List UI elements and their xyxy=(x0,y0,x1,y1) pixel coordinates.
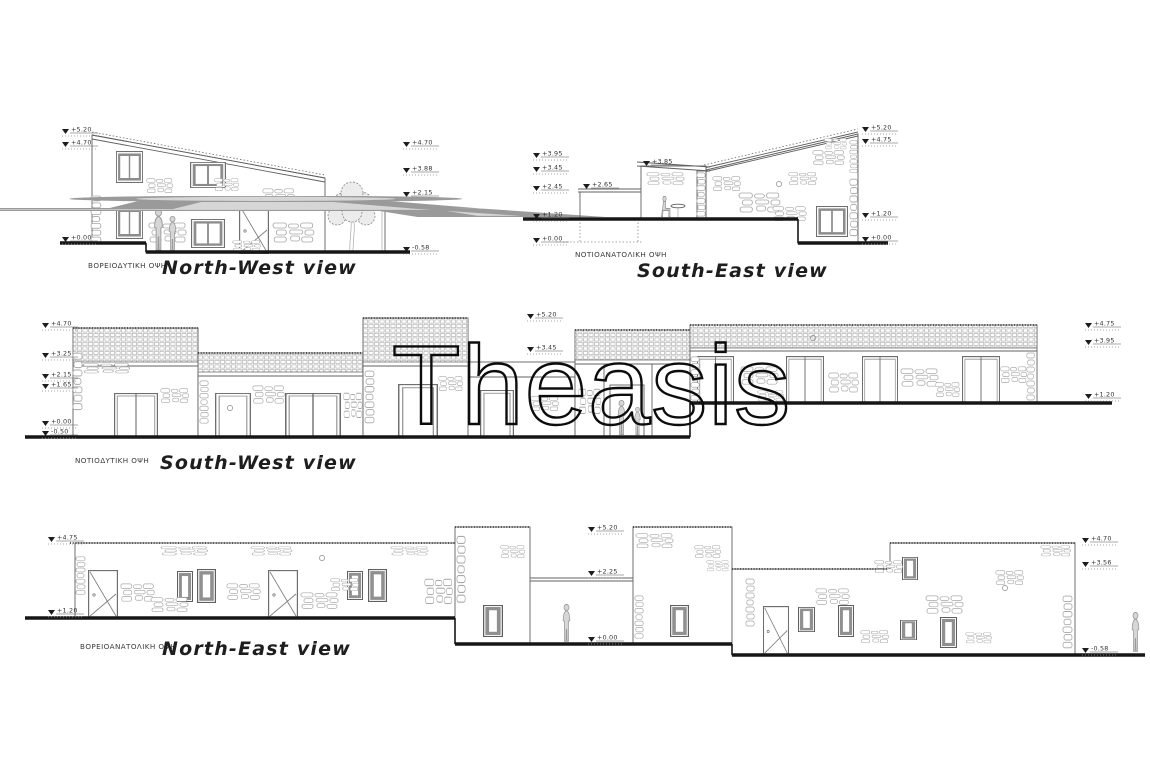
double-door xyxy=(962,357,999,403)
elevation-value: +2.65 xyxy=(592,181,613,189)
window xyxy=(901,620,917,639)
window xyxy=(941,618,957,648)
greek-view-label: ΒΟΡΕΙΟΔΥΤΙΚΗ ΟΨΗ xyxy=(88,261,167,270)
elevation-value: +4.70 xyxy=(1091,535,1112,543)
elevation-value: +4.70 xyxy=(412,139,433,147)
elevation-value: +2.15 xyxy=(51,371,72,379)
elevation-value: +3.88 xyxy=(412,165,433,173)
elevation-value: -0.58 xyxy=(412,244,430,252)
elevation-value: +1.20 xyxy=(1094,391,1115,399)
window xyxy=(817,207,848,237)
elevation-value: +5.20 xyxy=(536,311,557,319)
window xyxy=(116,208,142,239)
window xyxy=(671,606,689,637)
window xyxy=(799,607,815,631)
window xyxy=(198,570,216,603)
elevation-value: +0.00 xyxy=(871,234,892,242)
elevation-value: +1.20 xyxy=(871,210,892,218)
elevation-value: +2.45 xyxy=(542,183,563,191)
elevation-value: +4.75 xyxy=(871,136,892,144)
elevation-value: +5.20 xyxy=(871,124,892,132)
ne-middle-building xyxy=(633,527,732,644)
window xyxy=(903,557,918,579)
window xyxy=(116,152,142,183)
double-door xyxy=(786,357,823,403)
ne-left-wall xyxy=(70,543,460,618)
elevation-value: +2.25 xyxy=(597,568,618,576)
view-title: South-West view xyxy=(160,452,357,474)
elevation-value: +0.00 xyxy=(542,235,563,243)
double-door xyxy=(862,357,897,403)
elevation-value: +1.20 xyxy=(542,211,563,219)
elevation-value: -0.50 xyxy=(51,428,69,436)
view-title: North-West view xyxy=(162,257,357,279)
double-door xyxy=(286,394,341,438)
elevation-value: +3.95 xyxy=(1094,337,1115,345)
watermark: Theasis xyxy=(392,323,791,448)
view-title: South-East view xyxy=(637,260,828,282)
door xyxy=(216,393,251,436)
door xyxy=(89,570,118,617)
elevation-value: -0.58 xyxy=(1091,645,1109,653)
elevation-value: +1.65 xyxy=(51,381,72,389)
window xyxy=(192,219,225,247)
elevation-value: +3.25 xyxy=(51,350,72,358)
elevation-value: +4.70 xyxy=(51,320,72,328)
elevation-value: +4.75 xyxy=(1094,320,1115,328)
ne-tall-section xyxy=(455,527,530,644)
window xyxy=(369,570,387,602)
window xyxy=(839,606,854,637)
view-title: North-East view xyxy=(162,638,351,660)
elevation-value: +3.85 xyxy=(652,158,673,166)
door xyxy=(240,206,269,253)
elevation-value: +5.20 xyxy=(597,524,618,532)
elevation-drawing: +5.20 +4.70 +0.00 +4.70 +3.88 +2.15 -0.5… xyxy=(0,0,1150,767)
sw-section-b xyxy=(198,353,363,437)
greek-view-label: ΝΟΤΙΟΑΝΑΤΟΛΙΚΗ ΟΨΗ xyxy=(575,250,667,259)
door xyxy=(763,606,788,654)
elevation-value: +1.20 xyxy=(57,607,78,615)
sw-section-a xyxy=(73,328,198,437)
elevation-value: +4.75 xyxy=(57,534,78,542)
elevation-value: +0.00 xyxy=(71,234,92,242)
elevation-value: +5.20 xyxy=(71,126,92,134)
door xyxy=(269,570,298,617)
elevation-value: +0.00 xyxy=(597,634,618,642)
elevation-value: +3.95 xyxy=(542,150,563,158)
elevation-value: +2.15 xyxy=(412,189,433,197)
elevation-value: +4.70 xyxy=(71,139,92,147)
greek-view-label: ΝΟΤΙΟΔΥΤΙΚΗ ΟΨΗ xyxy=(75,456,149,465)
elevation-value: +3.56 xyxy=(1091,559,1112,567)
elevation-value: +3.45 xyxy=(542,164,563,172)
window xyxy=(178,572,193,602)
double-door xyxy=(115,394,158,438)
elevation-value: +0.00 xyxy=(51,418,72,426)
drawing-sheet: +5.20 +4.70 +0.00 +4.70 +3.88 +2.15 -0.5… xyxy=(0,0,1150,767)
window xyxy=(484,606,503,637)
